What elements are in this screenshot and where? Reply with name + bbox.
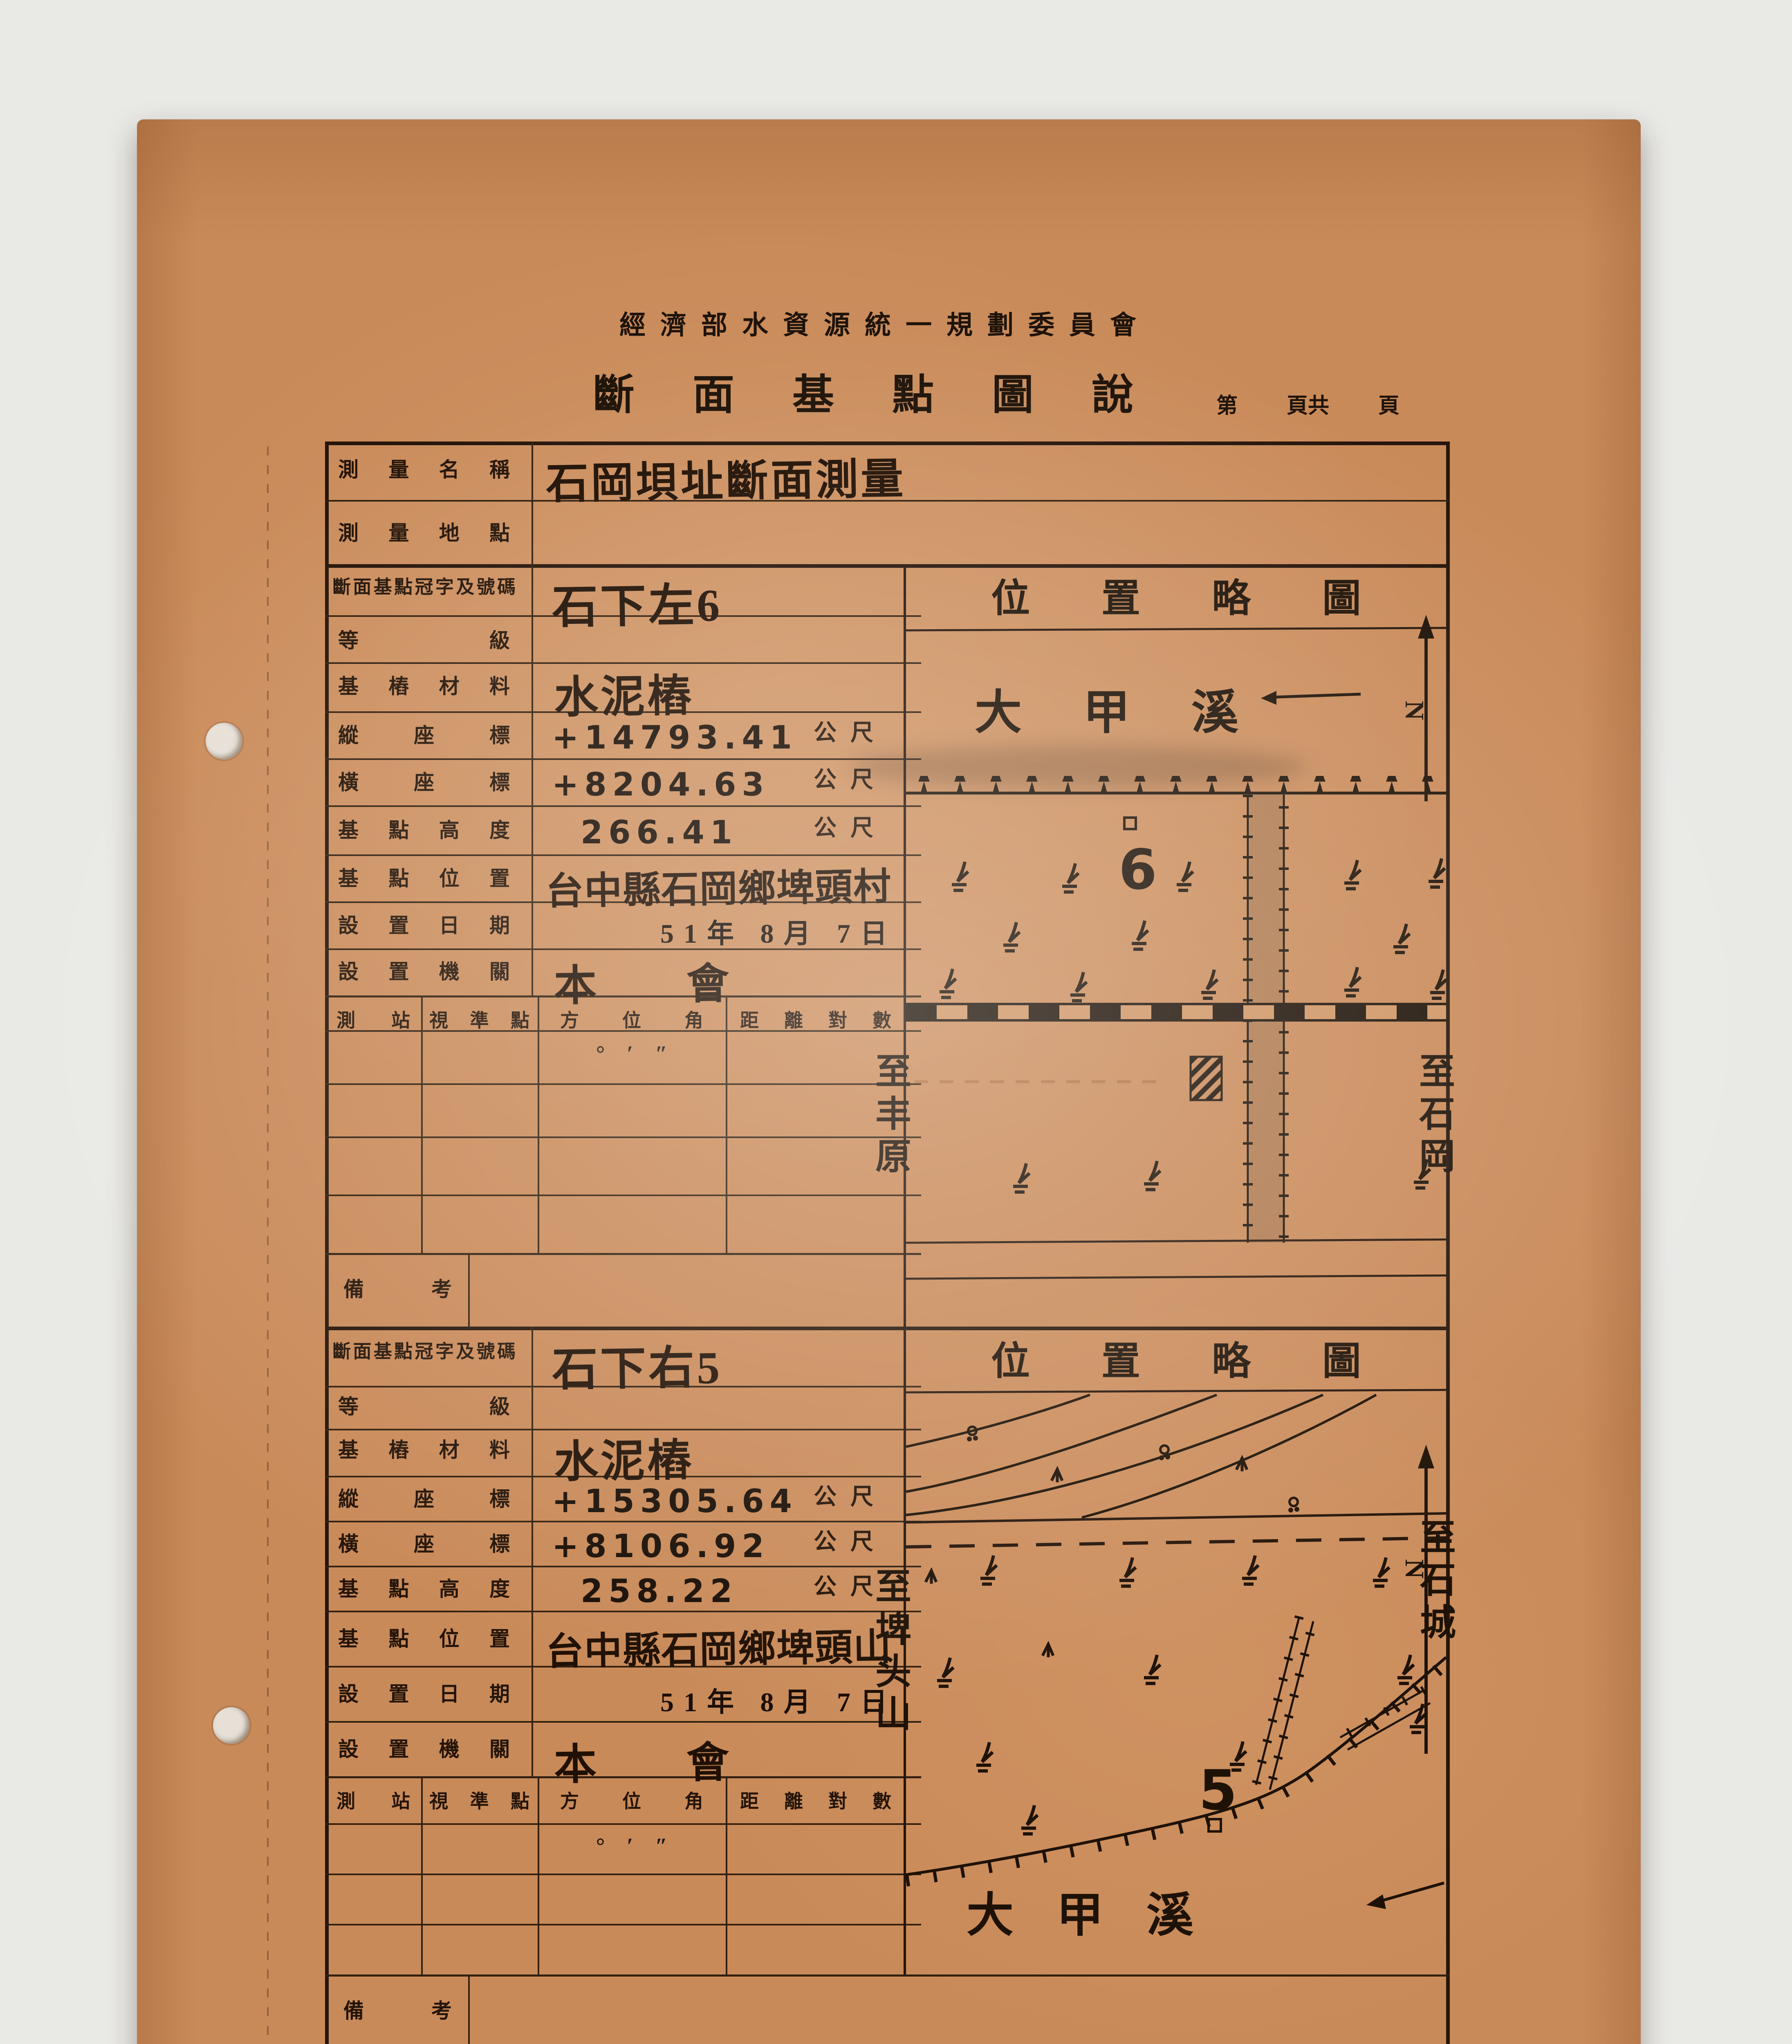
building-symbol bbox=[1191, 1057, 1222, 1100]
levee-road bbox=[1256, 1616, 1430, 1790]
base-point-marker bbox=[1124, 818, 1136, 829]
field-label: 基點高度 bbox=[338, 1578, 510, 1600]
fold-dotted-line bbox=[267, 446, 269, 2044]
field-label: 基點位置 bbox=[338, 867, 510, 890]
rule bbox=[538, 995, 539, 1255]
base-point-label: 5 bbox=[1199, 1758, 1237, 1822]
vegetation-symbols bbox=[926, 1427, 1298, 1657]
base-point-label: 6 bbox=[1119, 838, 1157, 902]
page-note-mid: 頁共 bbox=[1287, 394, 1329, 418]
field-value: +8106.92 bbox=[552, 1528, 770, 1565]
flow-arrow bbox=[1261, 691, 1361, 705]
field-label: 設置日期 bbox=[338, 914, 510, 937]
rule bbox=[325, 1327, 1449, 1330]
field-value: 51年 8月 7日 bbox=[660, 1680, 897, 1719]
azimuth-units: ° ′ ″ bbox=[560, 1035, 703, 1067]
rule bbox=[325, 442, 329, 2044]
edge-label-right: 至石岡 bbox=[1414, 1052, 1455, 1180]
river-bank bbox=[906, 1657, 1446, 1880]
field-value: 水泥樁 bbox=[554, 660, 694, 726]
rule bbox=[325, 758, 921, 760]
field-unit: 公尺 bbox=[814, 1478, 887, 1511]
field-value: +14793.41 bbox=[552, 719, 798, 756]
field-unit: 公尺 bbox=[814, 714, 887, 747]
field-label: 基樁材料 bbox=[338, 1439, 510, 1461]
punch-hole bbox=[206, 723, 242, 760]
field-label: 斷面基點冠字及號碼 bbox=[332, 577, 516, 598]
field-unit: 公尺 bbox=[814, 1523, 887, 1556]
rule bbox=[325, 1823, 921, 1825]
field-label: 等級 bbox=[338, 1396, 510, 1418]
north-label: N bbox=[1400, 701, 1429, 720]
field-value: 258.22 bbox=[581, 1573, 738, 1610]
rule bbox=[726, 995, 727, 1255]
location-sketch-map-a: 位置略圖 大甲溪 N 6 bbox=[906, 566, 1446, 1327]
obs-col-logdist: 距離對數 bbox=[740, 1791, 891, 1812]
rule bbox=[325, 1566, 921, 1567]
rule bbox=[421, 1776, 423, 1977]
field-label: 縱座標 bbox=[338, 1488, 510, 1511]
org-title: 經濟部水資源統一規劃委員會 bbox=[619, 304, 1151, 342]
rule bbox=[1446, 442, 1450, 2044]
field-label: 橫座標 bbox=[338, 1533, 510, 1555]
obs-col-station: 測站 bbox=[336, 1011, 410, 1031]
page-note: 第頁共頁 bbox=[1216, 388, 1400, 419]
field-value: 石下左6 bbox=[552, 568, 722, 637]
field-label: 測量名稱 bbox=[338, 459, 510, 481]
obs-col-azimuth: 方位角 bbox=[560, 1011, 703, 1031]
grass-symbols bbox=[937, 1555, 1426, 1834]
rule bbox=[325, 1611, 921, 1612]
map-title: 位置略圖 bbox=[991, 577, 1433, 620]
remark-label: 備考 bbox=[343, 1278, 452, 1301]
remark-label: 備考 bbox=[343, 2000, 452, 2022]
rule bbox=[325, 854, 921, 856]
field-value: 266.41 bbox=[581, 814, 738, 851]
railway-line bbox=[906, 1004, 1446, 1020]
obs-col-target: 視準點 bbox=[429, 1791, 529, 1812]
field-label: 設置日期 bbox=[338, 1683, 510, 1706]
edge-label-left: 至丰原 bbox=[870, 1052, 911, 1180]
field-label: 測量地點 bbox=[338, 522, 510, 545]
punch-hole bbox=[213, 1707, 250, 1744]
field-label: 等級 bbox=[338, 630, 510, 652]
grass-symbols bbox=[940, 858, 1447, 1192]
field-label: 斷面基點冠字及號碼 bbox=[332, 1342, 516, 1362]
rule bbox=[325, 1195, 921, 1196]
edge-label-left: 至埤头山 bbox=[870, 1567, 911, 1737]
map-title: 位置略圖 bbox=[991, 1340, 1433, 1383]
rule bbox=[538, 1776, 539, 1977]
rule bbox=[325, 805, 921, 807]
field-value: 水泥樁 bbox=[554, 1425, 694, 1490]
field-value: +15305.64 bbox=[552, 1483, 798, 1520]
rule bbox=[421, 995, 423, 1255]
field-label: 基點高度 bbox=[338, 819, 510, 842]
field-unit: 公尺 bbox=[814, 809, 887, 843]
field-value: +8204.63 bbox=[552, 766, 770, 803]
field-label: 設置機關 bbox=[338, 1738, 510, 1761]
obs-col-azimuth: 方位角 bbox=[560, 1791, 703, 1812]
rule bbox=[325, 1136, 921, 1138]
location-sketch-map-b: 位置略圖 N 至埤头山 至石城 bbox=[906, 1330, 1446, 1975]
scanned-form-page: 經濟部水資源統一規劃委員會 斷面基點圖說 第頁共頁 bbox=[0, 0, 1792, 2044]
field-value: 石下右5 bbox=[552, 1330, 722, 1399]
field-label: 縱座標 bbox=[338, 724, 510, 747]
field-label: 橫座標 bbox=[338, 771, 510, 794]
page-note-prefix: 第 bbox=[1216, 394, 1238, 418]
road-line bbox=[906, 1275, 1446, 1279]
field-value: 台中縣石岡鄉埤頭村 bbox=[545, 856, 892, 915]
rule bbox=[325, 1083, 921, 1085]
obs-col-target: 視準點 bbox=[429, 1011, 529, 1031]
rule bbox=[325, 1874, 921, 1875]
field-value: 本會 bbox=[554, 947, 819, 1013]
field-label: 基樁材料 bbox=[338, 675, 510, 698]
rule bbox=[325, 1253, 921, 1255]
survey-name-value: 石岡垻址斷面測量 bbox=[545, 444, 906, 511]
flow-arrow bbox=[1366, 1883, 1444, 1909]
obs-col-station: 測站 bbox=[336, 1791, 410, 1812]
rule bbox=[325, 1975, 1449, 1977]
road-line bbox=[906, 1239, 1446, 1243]
rule bbox=[468, 1253, 470, 1329]
contour-lines bbox=[906, 1395, 1376, 1517]
page-note-suffix: 頁 bbox=[1378, 394, 1400, 418]
form-title: 斷面基點圖說 bbox=[593, 361, 1191, 421]
paper-sheet: 經濟部水資源統一規劃委員會 斷面基點圖說 第頁共頁 bbox=[137, 119, 1641, 2044]
field-label: 基點位置 bbox=[338, 1628, 510, 1650]
river-label: 大甲溪 bbox=[967, 1889, 1236, 1941]
field-value: 台中縣石岡鄉埤頭山 bbox=[545, 1616, 892, 1676]
rule bbox=[532, 1327, 533, 1778]
rule bbox=[325, 1721, 921, 1723]
river-bank-teeth bbox=[906, 776, 1446, 793]
field-value: 本會 bbox=[554, 1726, 819, 1791]
rule bbox=[325, 1924, 921, 1925]
rule bbox=[726, 1776, 727, 1977]
dashed-road bbox=[906, 1538, 1446, 1547]
rule bbox=[532, 442, 533, 997]
river-label: 大甲溪 bbox=[975, 687, 1300, 739]
rule bbox=[468, 1975, 470, 2044]
field-label: 設置機關 bbox=[338, 961, 510, 983]
rule bbox=[325, 1521, 921, 1522]
obs-col-logdist: 距離對數 bbox=[740, 1011, 891, 1031]
edge-label-right: 至石城 bbox=[1415, 1518, 1456, 1646]
azimuth-units: ° ′ ″ bbox=[560, 1827, 703, 1860]
field-value: 51年 8月 7日 bbox=[660, 912, 897, 951]
road-line bbox=[906, 1513, 1446, 1522]
